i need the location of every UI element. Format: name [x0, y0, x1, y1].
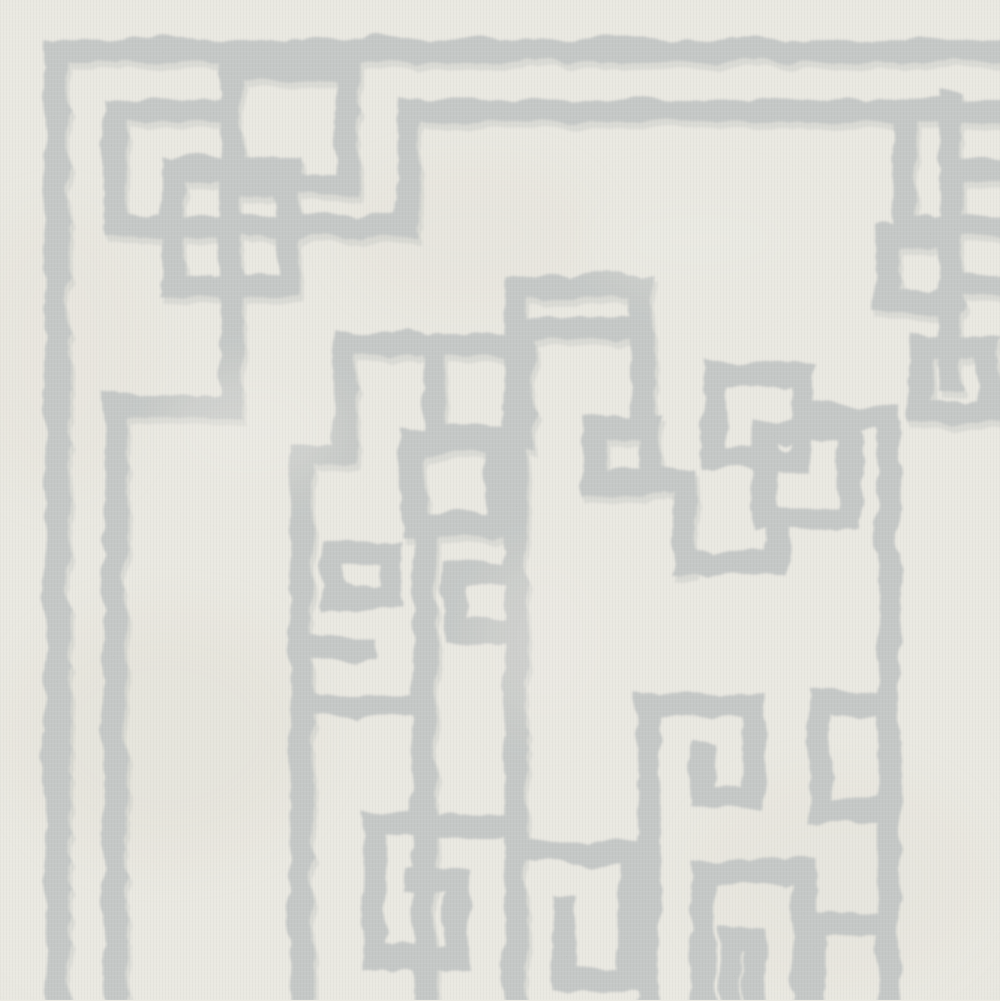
rug-pattern-canvas	[0, 0, 1000, 1000]
rug-photo: Close-up of a hand-tufted wool area rug	[0, 0, 1000, 1000]
wool-grain-light	[0, 0, 1000, 1000]
